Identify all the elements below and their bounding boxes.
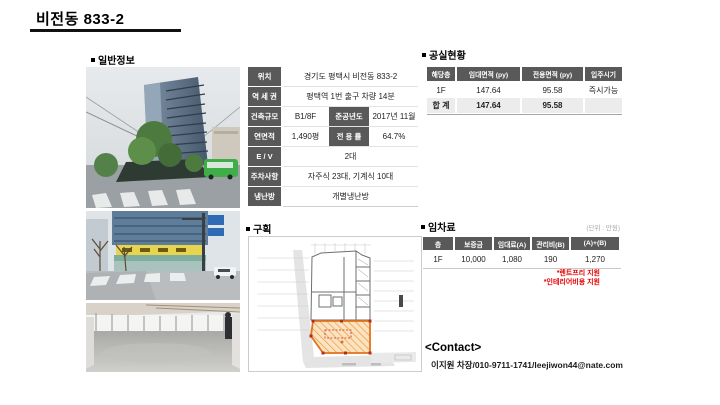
column-header: 전용면적 (py) xyxy=(522,67,583,81)
vacancy-table: 해당층 임대면적 (py) 전용면적 (py) 입주시기 1F 147.64 9… xyxy=(427,67,622,115)
row-value: 2대 xyxy=(283,147,418,167)
cell-floor: 합 계 xyxy=(427,98,455,113)
rent-notes: *렌트프리 지원 *인테리어비용 지원 xyxy=(423,269,600,287)
row-value: 개별냉난방 xyxy=(283,187,418,207)
rent-unit-note: (단위 : 만원) xyxy=(560,222,620,232)
section-label-plan-text: 구획 xyxy=(253,221,271,236)
title-underline xyxy=(30,29,181,32)
bullet-icon xyxy=(421,225,425,229)
cell-move-in xyxy=(585,98,622,113)
table-row: 주차사항 자주식 23대, 기계식 10대 xyxy=(248,167,418,187)
cell-exclusive-area: 95.58 xyxy=(522,98,583,113)
photo-building-exterior-graphic xyxy=(86,67,240,208)
table-row: 연면적 1,490평 전 용 률 64.7% xyxy=(248,127,418,147)
section-label-general: 일반정보 xyxy=(91,52,135,67)
cell-maintenance: 190 xyxy=(532,255,569,264)
section-label-vacancy: 공실현황 xyxy=(422,47,466,62)
row-sub-value: 64.7% xyxy=(370,132,418,141)
floor-plan-drawing xyxy=(249,237,421,371)
cell-rent: 1,080 xyxy=(494,255,530,264)
row-sub-label: 전 용 률 xyxy=(329,127,369,146)
row-label: 주차사항 xyxy=(248,167,281,186)
column-header: (A)+(B) xyxy=(571,237,619,250)
row-value-group: 1,490평 전 용 률 64.7% xyxy=(283,127,418,147)
row-label: 냉난방 xyxy=(248,187,281,206)
photo-street-corner-graphic xyxy=(86,211,240,300)
row-value: 자주식 23대, 기계식 10대 xyxy=(283,167,418,187)
bullet-icon xyxy=(422,53,426,57)
column-header: 관리비(B) xyxy=(532,237,569,250)
column-header: 해당층 xyxy=(427,67,455,81)
cell-move-in: 즉시가능 xyxy=(585,83,622,98)
table-row: 냉난방 개별냉난방 xyxy=(248,187,418,207)
row-label: 건축규모 xyxy=(248,107,281,126)
row-label: 위치 xyxy=(248,67,281,86)
photo-street-corner xyxy=(86,211,240,300)
row-value: 1,490평 xyxy=(283,131,328,142)
table-row: 1F 10,000 1,080 190 1,270 xyxy=(423,252,621,266)
table-row: 건축규모 B1/8F 준공년도 2017년 11월 xyxy=(248,107,418,127)
cell-exclusive-area: 95.58 xyxy=(522,83,583,98)
cell-deposit: 10,000 xyxy=(455,255,492,264)
cell-floor: 1F xyxy=(427,83,455,98)
section-label-rent-text: 임차료 xyxy=(428,219,456,234)
cell-total: 1,270 xyxy=(571,255,619,264)
cell-lease-area: 147.64 xyxy=(457,83,520,98)
contact-heading: <Contact> xyxy=(425,342,481,354)
row-label: 역 세 권 xyxy=(248,87,281,106)
column-header: 입주시기 xyxy=(585,67,622,81)
vacancy-table-header: 해당층 임대면적 (py) 전용면적 (py) 입주시기 xyxy=(427,67,622,81)
row-value: 평택역 1번 출구 차량 14분 xyxy=(283,87,418,107)
table-row-total: 합 계 147.64 95.58 xyxy=(427,98,622,113)
section-label-rent: 임차료 xyxy=(421,219,456,234)
column-header: 층 xyxy=(423,237,453,250)
floor-plan xyxy=(248,236,422,372)
row-sub-value: 2017년 11월 xyxy=(370,111,418,122)
rent-note: *인테리어비용 지원 xyxy=(423,278,600,287)
photo-empty-interior-graphic xyxy=(86,303,240,372)
table-bottom-border xyxy=(427,114,622,115)
row-value: B1/8F xyxy=(283,112,328,121)
row-label: 연면적 xyxy=(248,127,281,146)
cell-floor: 1F xyxy=(423,255,453,264)
row-sub-label: 준공년도 xyxy=(329,107,369,126)
bullet-icon xyxy=(91,58,95,62)
cell-lease-area: 147.64 xyxy=(457,98,520,113)
bullet-icon xyxy=(246,227,250,231)
property-sheet: 비전동 833-2 일반정보 공실현황 구획 임차료 (단위 : 만원) xyxy=(0,0,720,405)
photo-empty-interior xyxy=(86,303,240,372)
column-header: 보증금 xyxy=(455,237,492,250)
page-title: 비전동 833-2 xyxy=(36,8,124,29)
column-header: 임대료(A) xyxy=(494,237,530,250)
row-label: E / V xyxy=(248,147,281,166)
rent-table: 층 보증금 임대료(A) 관리비(B) (A)+(B) 1F 10,000 1,… xyxy=(423,237,621,269)
general-info-table: 위치 경기도 평택시 비전동 833-2 역 세 권 평택역 1번 출구 차량 … xyxy=(248,67,418,207)
row-value: 경기도 평택시 비전동 833-2 xyxy=(283,67,418,87)
table-row: 역 세 권 평택역 1번 출구 차량 14분 xyxy=(248,87,418,107)
table-row: 위치 경기도 평택시 비전동 833-2 xyxy=(248,67,418,87)
photo-building-exterior xyxy=(86,67,240,208)
rent-note: *렌트프리 지원 xyxy=(423,269,600,278)
rent-table-header: 층 보증금 임대료(A) 관리비(B) (A)+(B) xyxy=(423,237,621,250)
table-row: 1F 147.64 95.58 즉시가능 xyxy=(427,83,622,98)
section-label-general-text: 일반정보 xyxy=(98,52,135,67)
column-header: 임대면적 (py) xyxy=(457,67,520,81)
section-label-vacancy-text: 공실현황 xyxy=(429,47,466,62)
section-label-plan: 구획 xyxy=(246,221,271,236)
row-value-group: B1/8F 준공년도 2017년 11월 xyxy=(283,107,418,127)
table-row: E / V 2대 xyxy=(248,147,418,167)
contact-line: 이지원 차장/010-9711-1741/leejiwon44@nate.com xyxy=(431,359,623,371)
